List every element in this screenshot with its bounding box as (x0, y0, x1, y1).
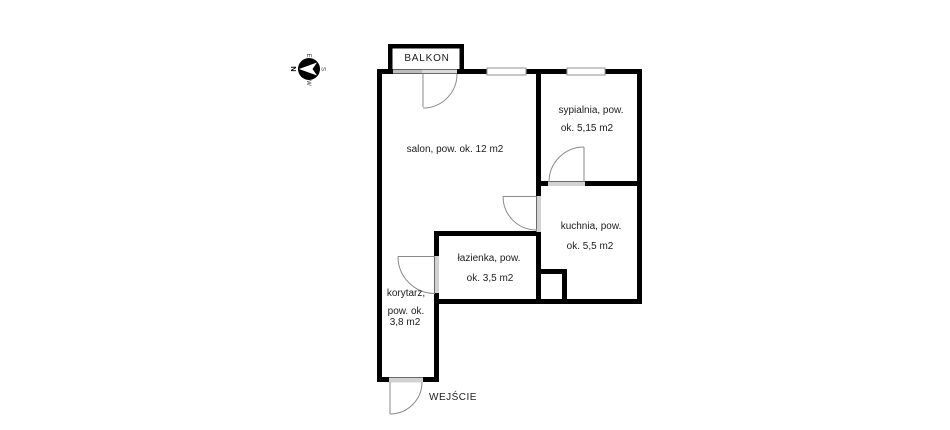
balcony-left-wall (388, 44, 393, 71)
corridor-right-wall (434, 231, 439, 382)
left-wall (377, 69, 382, 382)
balcony-top-wall (388, 44, 464, 49)
duct-right-wall (562, 269, 567, 304)
center-divider-wall (536, 69, 541, 304)
bedroom-window (567, 68, 605, 75)
corridor-label: korytarz, (387, 288, 425, 299)
kitchen-door-opening (537, 196, 542, 232)
entrance-door-opening (389, 378, 423, 383)
compass-south-label: S (320, 67, 326, 71)
balcony-door-sidelight (393, 70, 422, 74)
walls (377, 44, 642, 382)
compass-east-label: E (305, 53, 311, 57)
compass-west-label: W (305, 80, 311, 86)
door-openings (389, 70, 585, 383)
bedroom-label: sypialnia, pow. (558, 105, 623, 116)
living-room-window (487, 68, 526, 75)
floor-plan: N E S W BALKON salon, pow. ok. 12 m2 syp… (0, 0, 950, 430)
balcony-label: BALKON (404, 53, 449, 64)
entrance-label: WEJŚCIE (429, 390, 477, 403)
compass-icon: N E S W (289, 53, 326, 86)
bathroom-area-label: ok. 3,5 m2 (467, 273, 514, 284)
bathroom-door-opening (435, 256, 440, 293)
corridor-area-label-2: 3,8 m2 (390, 317, 421, 328)
room-labels: BALKON salon, pow. ok. 12 m2 sypialnia, … (387, 53, 624, 403)
balcony-door-swing (423, 74, 457, 108)
kitchen-area-label: ok. 5,5 m2 (567, 241, 614, 252)
kitchen-label: kuchnia, pow. (561, 221, 622, 232)
corridor-area-label-1: pow. ok. (388, 306, 425, 317)
bathroom-label: łazienka, pow. (458, 253, 521, 264)
balcony-door-opening (422, 70, 457, 74)
bedroom-door-swing (549, 147, 584, 182)
floor-plan-page: N E S W BALKON salon, pow. ok. 12 m2 syp… (0, 0, 950, 430)
balcony-right-wall (460, 44, 465, 71)
kitchen-door-swing (503, 197, 537, 231)
right-wall (637, 69, 642, 304)
living-room-label: salon, pow. ok. 12 m2 (407, 144, 504, 155)
compass-north-label: N (289, 66, 298, 71)
bathroom-top-wall (434, 231, 541, 236)
bedroom-area-label: ok. 5,15 m2 (561, 123, 614, 134)
entrance-door-swing (390, 382, 422, 414)
door-swings (390, 74, 584, 414)
bedroom-door-opening (548, 182, 585, 187)
